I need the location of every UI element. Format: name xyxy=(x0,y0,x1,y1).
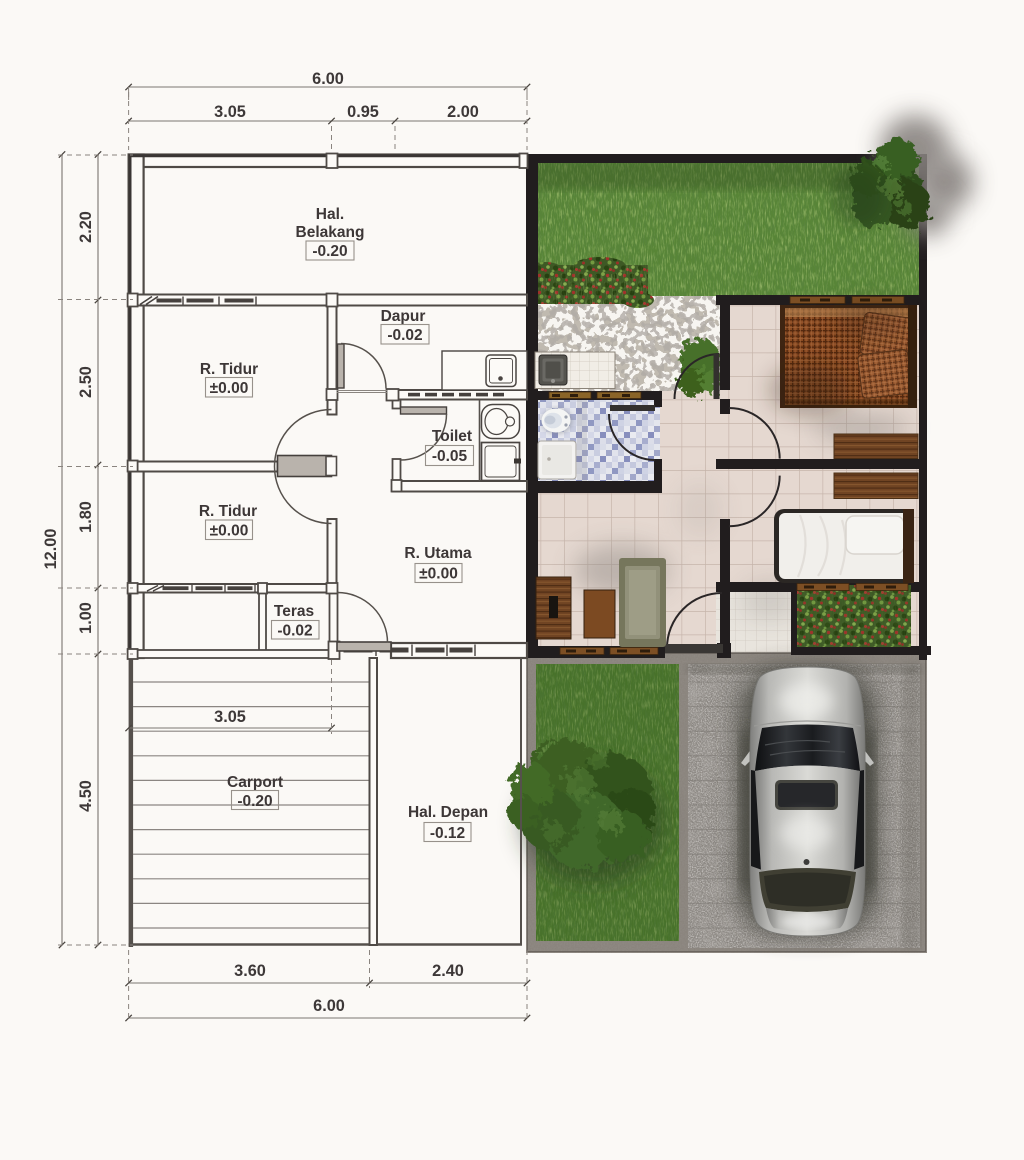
svg-text:4.50: 4.50 xyxy=(77,780,95,812)
svg-text:Dapur: Dapur xyxy=(381,308,426,325)
svg-text:Hal. Depan: Hal. Depan xyxy=(408,804,488,821)
svg-text:Toilet: Toilet xyxy=(432,428,472,445)
svg-text:1.80: 1.80 xyxy=(77,501,95,533)
svg-text:-0.02: -0.02 xyxy=(277,623,312,640)
svg-text:Carport: Carport xyxy=(227,774,283,791)
svg-text:R. Tidur: R. Tidur xyxy=(200,361,258,378)
svg-text:-0.20: -0.20 xyxy=(237,793,272,810)
svg-text:±0.00: ±0.00 xyxy=(210,380,249,397)
svg-text:±0.00: ±0.00 xyxy=(210,523,249,540)
svg-text:R. Utama: R. Utama xyxy=(404,545,472,562)
svg-text:Hal.: Hal. xyxy=(316,206,344,223)
svg-text:3.05: 3.05 xyxy=(214,103,246,121)
svg-text:3.05: 3.05 xyxy=(214,708,246,726)
svg-text:-0.12: -0.12 xyxy=(430,825,465,842)
svg-text:R. Tidur: R. Tidur xyxy=(199,503,257,520)
svg-text:2.50: 2.50 xyxy=(77,366,95,398)
svg-text:Teras: Teras xyxy=(274,603,314,620)
svg-text:1.00: 1.00 xyxy=(77,602,95,634)
svg-text:-0.20: -0.20 xyxy=(312,243,347,260)
svg-text:3.60: 3.60 xyxy=(234,962,266,980)
svg-text:6.00: 6.00 xyxy=(312,70,344,88)
svg-text:12.00: 12.00 xyxy=(42,529,60,570)
svg-text:Belakang: Belakang xyxy=(296,224,365,241)
svg-text:±0.00: ±0.00 xyxy=(419,566,458,583)
svg-text:-0.02: -0.02 xyxy=(387,327,422,344)
svg-text:6.00: 6.00 xyxy=(313,997,345,1015)
svg-text:2.20: 2.20 xyxy=(77,211,95,243)
svg-text:2.00: 2.00 xyxy=(447,103,479,121)
svg-text:2.40: 2.40 xyxy=(432,962,464,980)
svg-text:-0.05: -0.05 xyxy=(432,448,468,465)
svg-text:0.95: 0.95 xyxy=(347,103,379,121)
